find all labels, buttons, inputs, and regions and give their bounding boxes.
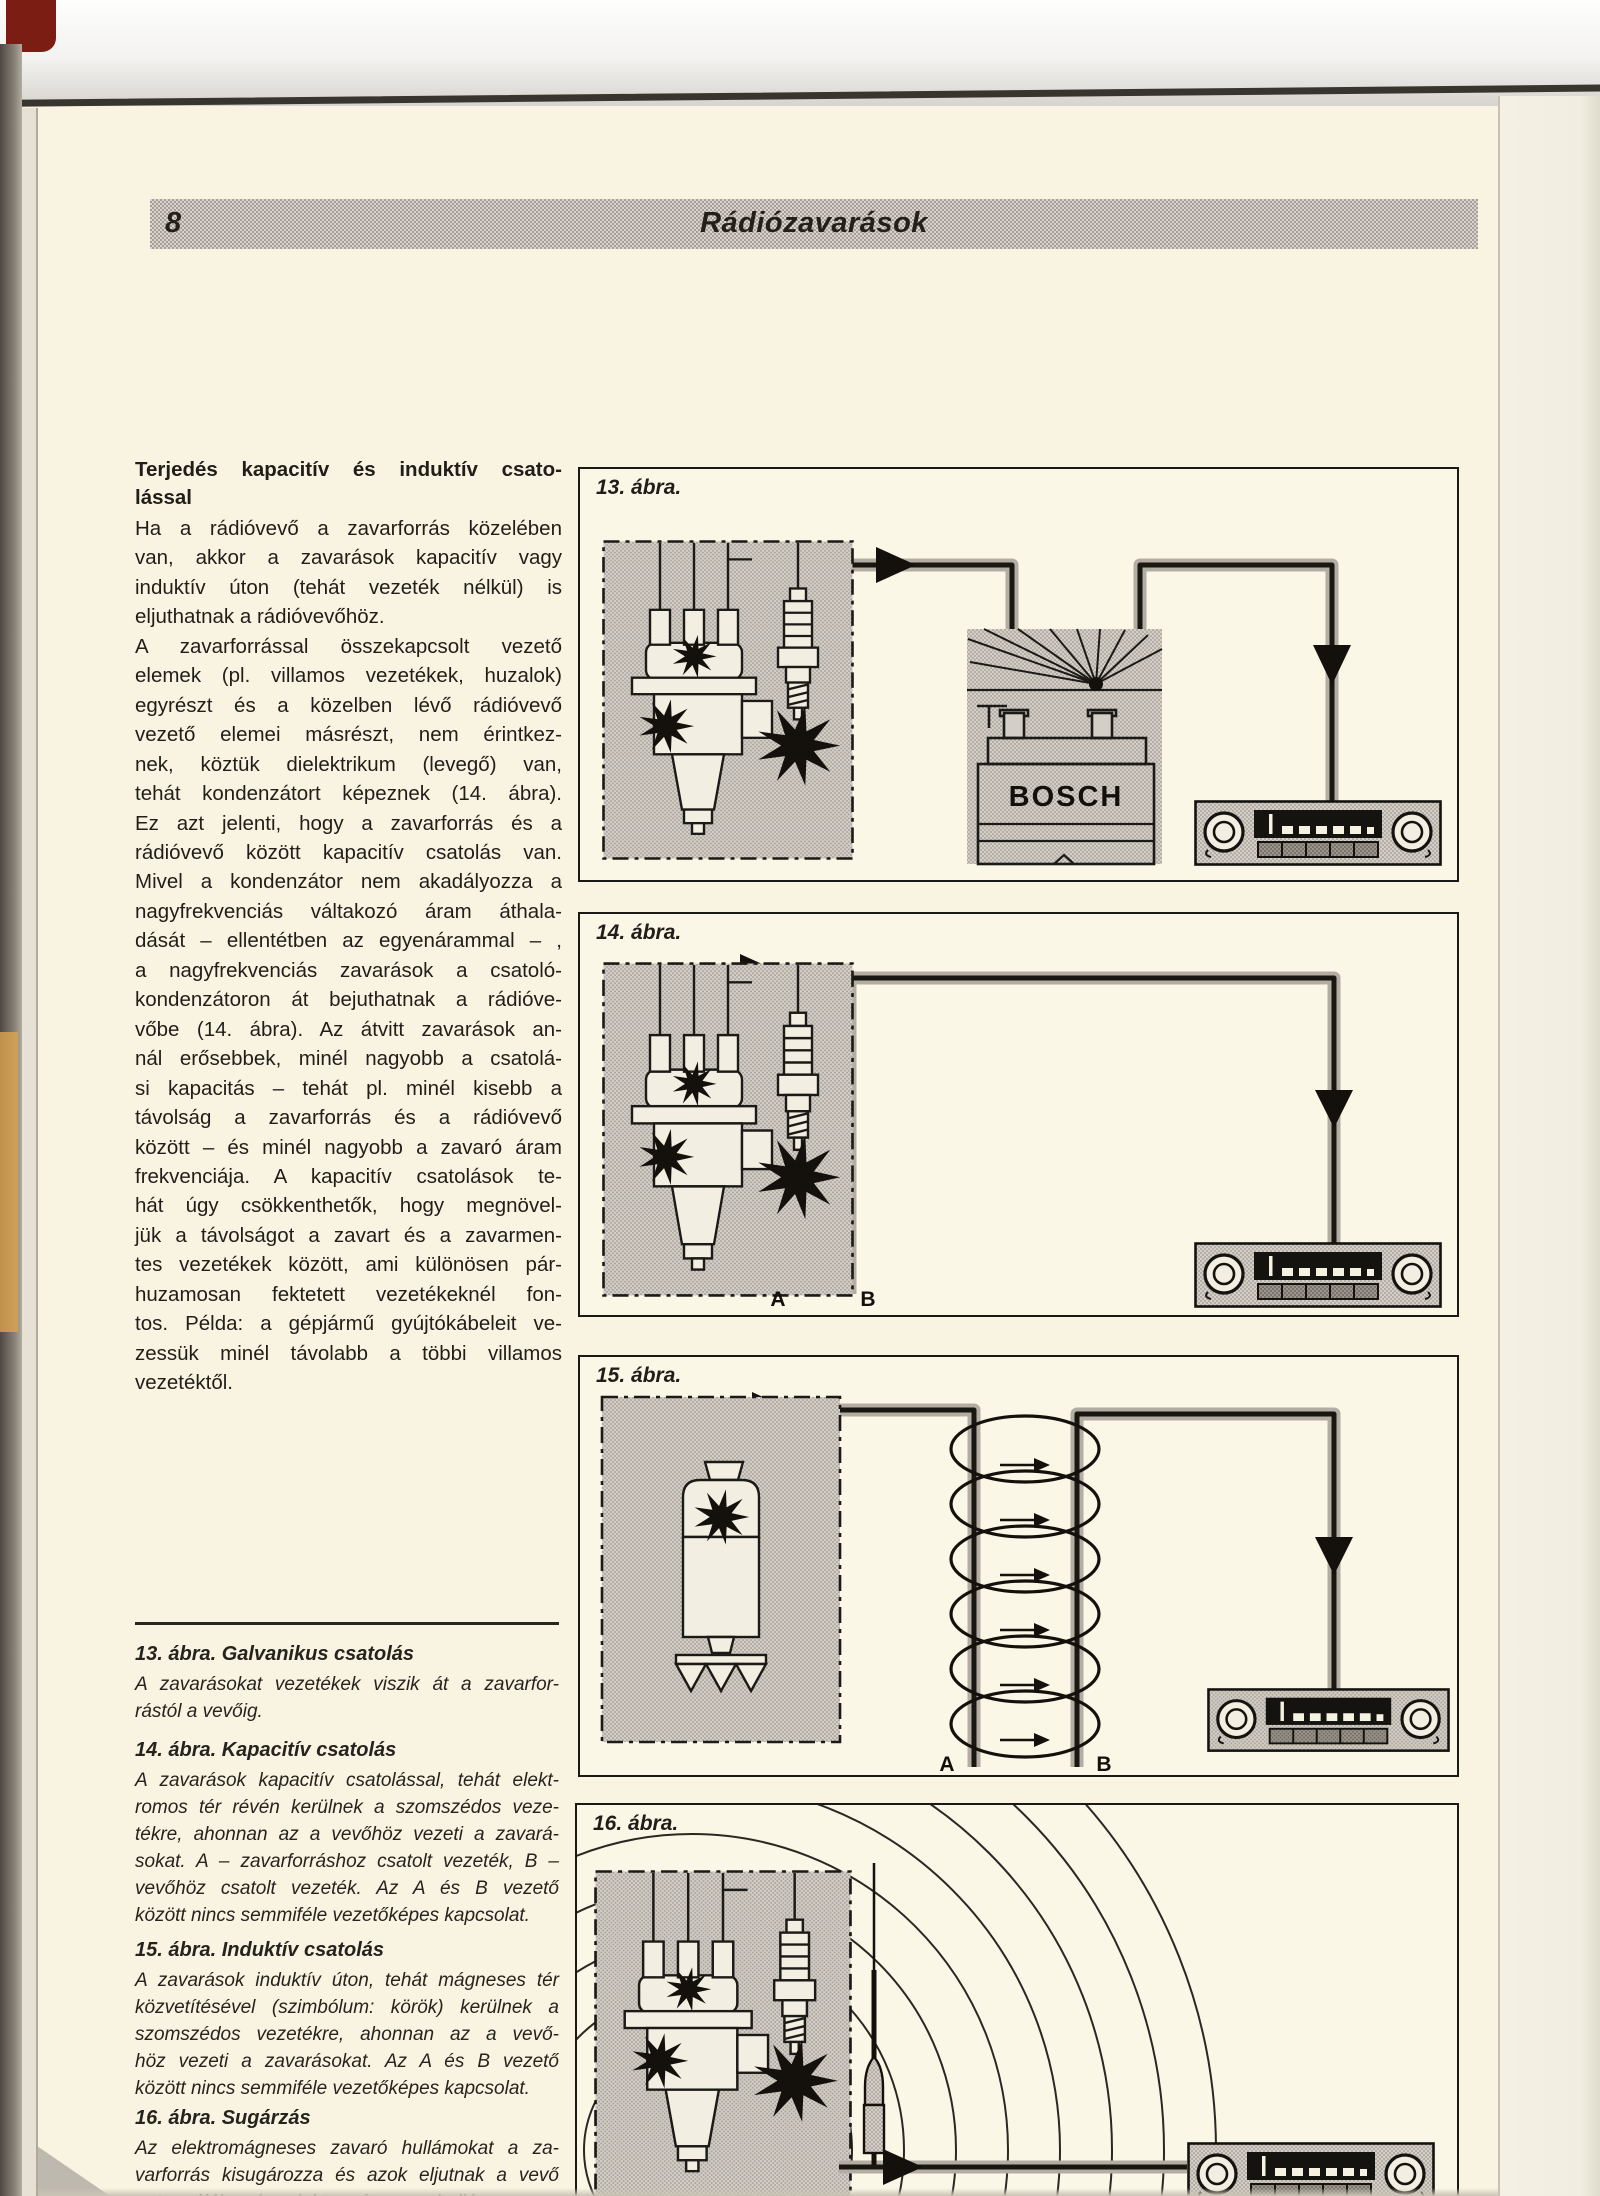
body-text: Ha a rádióvevő a zavarforrás közelébenva… <box>135 514 562 1398</box>
caption-line: varforrás kisugározza és azok eljutnak a… <box>135 2162 559 2189</box>
body-text-line: nál erősebbek, minél nagyobb a csatolá- <box>135 1044 562 1073</box>
generator-illustration <box>676 1462 766 1691</box>
caption-line: A zavarások kapacitív csatolással, tehát… <box>135 1767 559 1794</box>
figure-13-galvanic-coupling: 13. ábra. <box>578 467 1459 882</box>
caption-figure-14: 14. ábra. Kapacitív csatolás A zavarások… <box>135 1737 559 1929</box>
loop-direction-arrows <box>1000 1458 1050 1747</box>
body-text-line: a nagyfrekvenciás zavarások a csatoló- <box>135 956 562 985</box>
body-text-line: tos. Példa: a gépjármű gyújtókábeleit ve… <box>135 1309 562 1338</box>
page-right-edge <box>1498 96 1600 2196</box>
figure-label: 15. ábra. <box>596 1364 681 1388</box>
caption-line: Az elektromágneses zavaró hullámokat a z… <box>135 2135 559 2162</box>
wire-b-label: B <box>1096 1753 1111 1775</box>
caption-body: A zavarásokat vezetékek viszik át a zava… <box>135 1671 559 1725</box>
wire-b-label: B <box>860 1288 875 1311</box>
body-text-line: nek, köztük dielektrikum (levegő) van, <box>135 750 562 779</box>
body-text-line: Mivel a kondenzátor nem akadályozza a <box>135 867 562 896</box>
caption-figure-16: 16. ábra. Sugárzás Az elektromágneses za… <box>135 2105 559 2196</box>
battery-brand-label: BOSCH <box>1009 781 1124 813</box>
caption-line: között nincs semmiféle vezetőképes kapcs… <box>135 1902 559 1929</box>
body-text-line: Ha a rádióvevő a zavarforrás közelében <box>135 514 562 543</box>
caption-body: A zavarások induktív úton, tehát mágnese… <box>135 1967 559 2102</box>
figure-13-diagram: BOSCH <box>580 469 1457 880</box>
caption-body: A zavarások kapacitív csatolással, tehát… <box>135 1767 559 1929</box>
caption-title: 15. ábra. Induktív csatolás <box>135 1937 559 1963</box>
figure-label: 13. ábra. <box>596 476 681 500</box>
caption-figure-13: 13. ábra. Galvanikus csatolás A zavaráso… <box>135 1641 559 1725</box>
bottom-edge-shadow <box>0 2188 1600 2196</box>
arrowhead-right <box>876 547 916 583</box>
caption-title: 14. ábra. Kapacitív csatolás <box>135 1737 559 1763</box>
caption-line: rástól a vevőig. <box>135 1698 559 1725</box>
caption-line: A zavarásokat vezetékek viszik át a zava… <box>135 1671 559 1698</box>
left-edge-orange-strip <box>0 1032 18 1332</box>
body-text-line: egyrészt és a közelben lévő rádióvevő <box>135 691 562 720</box>
figure-14-capacitive-coupling: 14. ábra. <box>578 912 1459 1317</box>
arrowhead-down <box>1313 645 1351 685</box>
body-text-line: jük a távolságot a zavart és a zavarmen- <box>135 1221 562 1250</box>
caption-title: 16. ábra. Sugárzás <box>135 2105 559 2131</box>
car-radio-illustration <box>1196 1244 1441 1307</box>
body-text-line: tehát kondenzátort képeznek (14. ábra). <box>135 779 562 808</box>
body-text-line: frekvenciája. A kapacitív csatolások te- <box>135 1162 562 1191</box>
caption-divider-rule <box>135 1622 559 1625</box>
caption-line: közvetítésével (szimbólum: körök) kerüln… <box>135 1994 559 2021</box>
wire-a-label: A <box>939 1753 954 1775</box>
chapter-title: Rádiózavarások <box>150 207 1478 240</box>
body-text-line: rádióvevő között kapacitív csatolás van. <box>135 838 562 867</box>
body-text-line: zessük minél távolabb a többi villamos <box>135 1339 562 1368</box>
body-text-line: tes vezetékek között, ami különösen pár- <box>135 1250 562 1279</box>
wire-a-label: A <box>770 1288 785 1311</box>
body-text-line: kondenzátoron át bejuthatnak a rádióve- <box>135 985 562 1014</box>
distributor-and-spark-plug-illustration <box>604 541 853 858</box>
body-text-line: vezetéktől. <box>135 1368 562 1397</box>
car-radio-illustration <box>1208 1689 1448 1750</box>
figure-15-diagram: A B <box>580 1357 1457 1775</box>
caption-line: tékre, ahonnan az a vevőhöz vezeti a zav… <box>135 1821 559 1848</box>
page-header-band: 8 Rádiózavarások <box>150 199 1478 249</box>
arrowhead-down <box>1315 1090 1353 1128</box>
caption-body: Az elektromágneses zavaró hullámokat a z… <box>135 2135 559 2196</box>
page-left-edge <box>22 108 38 2196</box>
figure-14-diagram: A B <box>580 914 1457 1315</box>
body-text-line: távolság a zavarforrás és a rádióvevő <box>135 1103 562 1132</box>
body-text-line: vőbe (14. ábra). Az átvitt zavarások an- <box>135 1015 562 1044</box>
body-text-line: vezető elemei másrészt, nem érintkez- <box>135 720 562 749</box>
caption-line: szomszédos vezetékre, ahonnan az a vevő- <box>135 2021 559 2048</box>
body-text-line: van, akkor a zavarások kapacitív vagy <box>135 543 562 572</box>
heading-line: lással <box>135 484 562 512</box>
section-heading: Terjedés kapacitív és induktív csato-lás… <box>135 456 562 512</box>
caption-title: 13. ábra. Galvanikus csatolás <box>135 1641 559 1667</box>
body-text-line: huzamosan fektetett vezetékeknél fon- <box>135 1280 562 1309</box>
heading-line: Terjedés kapacitív és induktív csato- <box>135 456 562 484</box>
body-text-line: Ez azt jelenti, hogy a zavarforrás és a <box>135 809 562 838</box>
body-text-line: eljuthatnak a rádióvevőhöz. <box>135 602 562 631</box>
figure-label: 16. ábra. <box>593 1812 678 1836</box>
battery-illustration: BOSCH <box>967 629 1162 864</box>
caption-line: A zavarások induktív úton, tehát mágnese… <box>135 1967 559 1994</box>
caption-line: sokat. A – zavarforráshoz csatolt vezeté… <box>135 1848 559 1875</box>
scanned-book-page: 8 Rádiózavarások Terjedés kapacitív és i… <box>0 0 1600 2196</box>
caption-line: höz vezeti a zavarásokat. Az A és B veze… <box>135 2048 559 2075</box>
body-text-line: nagyfrekvenciás váltakozó áram áthala- <box>135 897 562 926</box>
arrowhead-down <box>1315 1537 1353 1575</box>
figure-16-diagram <box>577 1805 1457 2196</box>
body-text-line: si kapacitás – tehát pl. minél kisebb a <box>135 1074 562 1103</box>
figure-label: 14. ábra. <box>596 921 681 945</box>
body-text-line: hát úgy csökkenthetők, hogy megnövel- <box>135 1191 562 1220</box>
body-text-line: dását – ellentétben az egyenárammal – , <box>135 926 562 955</box>
antenna-illustration <box>864 1863 884 2165</box>
body-text-line: között – és minél nagyobb a zavaró áram <box>135 1133 562 1162</box>
caption-line: között nincs semmiféle vezetőképes kapcs… <box>135 2075 559 2102</box>
body-text-line: A zavarforrással összekapcsolt vezető <box>135 632 562 661</box>
body-text-line: elemek (pl. villamos vezetékek, huzalok) <box>135 661 562 690</box>
caption-line: romos tér révén kerülnek a szomszédos ve… <box>135 1794 559 1821</box>
car-radio-illustration <box>1196 802 1441 865</box>
caption-line: vevőhöz csatolt vezeték. Az A és B vezet… <box>135 1875 559 1902</box>
distributor-and-spark-plug-illustration <box>604 964 853 1296</box>
body-text-line: induktív úton (tehát vezeték nélkül) is <box>135 573 562 602</box>
figure-16-radiation: 16. ábra. <box>575 1803 1459 2196</box>
distributor-and-spark-plug-illustration <box>596 1871 851 2196</box>
figure-15-inductive-coupling: 15. ábra. <box>578 1355 1459 1777</box>
caption-figure-15: 15. ábra. Induktív csatolás A zavarások … <box>135 1937 559 2102</box>
